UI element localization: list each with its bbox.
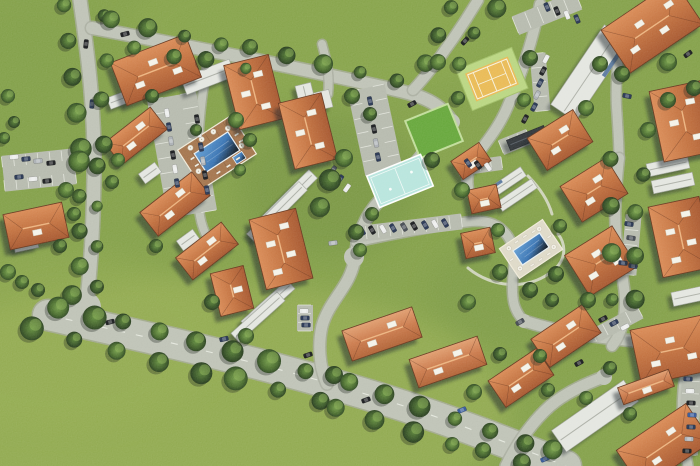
site-plan-canvas [0, 0, 700, 466]
site-plan-rendering [0, 0, 700, 466]
texture-overlay [0, 0, 700, 466]
